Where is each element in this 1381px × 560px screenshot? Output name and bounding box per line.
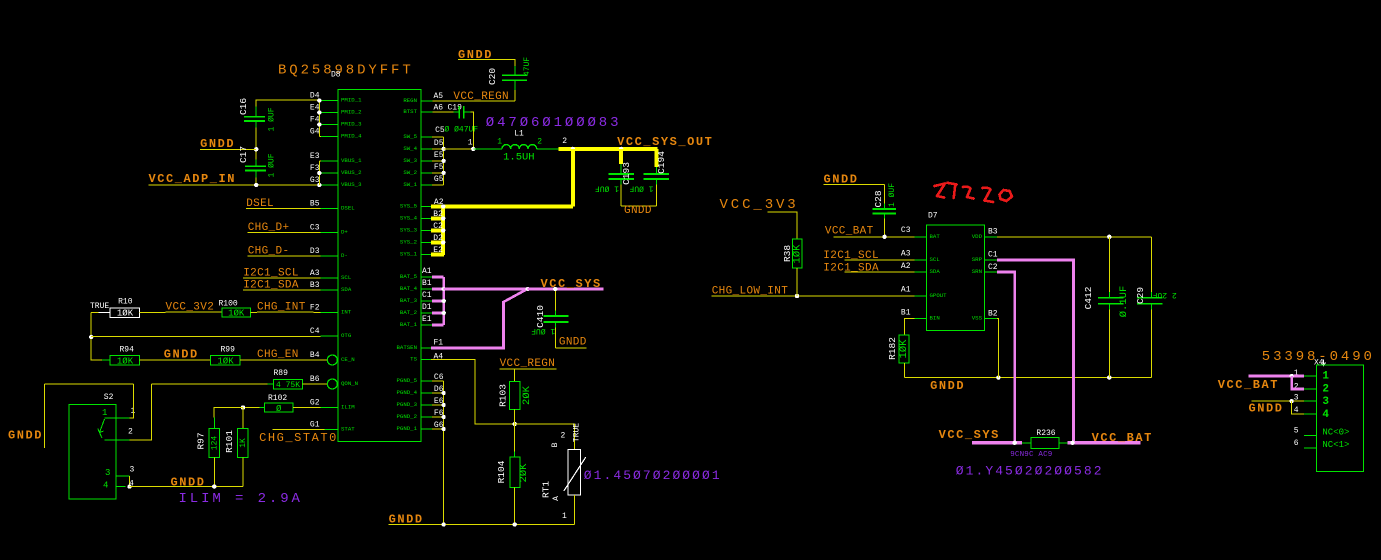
svg-text:PGND_5: PGND_5 <box>397 377 418 384</box>
svg-text:R100: R100 <box>219 300 238 309</box>
svg-text:X4: X4 <box>1314 359 1324 368</box>
svg-text:D+: D+ <box>341 229 348 236</box>
svg-text:C2: C2 <box>988 263 998 272</box>
svg-text:1ØK: 1ØK <box>898 339 910 359</box>
svg-text:SYS_1: SYS_1 <box>400 251 418 258</box>
svg-text:VBUS_2: VBUS_2 <box>341 169 362 176</box>
svg-text:3: 3 <box>105 468 110 478</box>
svg-text:2ØK: 2ØK <box>518 463 530 483</box>
svg-text:PGND_2: PGND_2 <box>397 413 418 420</box>
svg-text:Ø1.45Ø7Ø2ØØØØ1: Ø1.45Ø7Ø2ØØØØ1 <box>584 468 722 483</box>
svg-text:C4: C4 <box>310 327 320 336</box>
svg-text:BQ25898DYFFT: BQ25898DYFFT <box>278 63 414 79</box>
svg-text:E2: E2 <box>433 246 443 255</box>
svg-text:SDA: SDA <box>930 268 941 275</box>
svg-text:1 ØUF: 1 ØUF <box>595 184 619 193</box>
svg-text:C193: C193 <box>621 162 632 185</box>
svg-text:47UF: 47UF <box>523 57 532 76</box>
svg-text:C194: C194 <box>656 151 667 174</box>
svg-text:SW_3: SW_3 <box>403 157 417 164</box>
svg-text:4: 4 <box>103 481 108 491</box>
svg-text:A3: A3 <box>310 269 320 278</box>
svg-text:F2: F2 <box>310 304 320 313</box>
svg-text:B1: B1 <box>901 309 911 318</box>
svg-text:C412: C412 <box>1083 286 1094 309</box>
svg-text:NC<0>: NC<0> <box>1322 428 1349 438</box>
svg-text:1ØK: 1ØK <box>217 357 234 367</box>
svg-text:VCC_SYS: VCC_SYS <box>939 428 1000 442</box>
svg-text:E5: E5 <box>434 151 444 160</box>
svg-text:1 ØUF: 1 ØUF <box>531 326 555 335</box>
svg-text:C5: C5 <box>435 126 445 135</box>
svg-text:R102: R102 <box>268 394 287 403</box>
svg-text:9CN9C AC9: 9CN9C AC9 <box>1010 451 1052 459</box>
svg-text:R103: R103 <box>498 384 509 407</box>
svg-text:1ØK: 1ØK <box>117 309 134 319</box>
svg-text:B6: B6 <box>310 375 320 384</box>
svg-text:GPOUT: GPOUT <box>930 292 948 299</box>
svg-text:INT: INT <box>341 309 352 316</box>
svg-text:ILIM = 2.9A: ILIM = 2.9A <box>179 491 303 507</box>
svg-text:124: 124 <box>211 436 220 451</box>
svg-text:F6: F6 <box>434 409 444 418</box>
svg-text:D8: D8 <box>331 71 341 80</box>
svg-text:C29: C29 <box>1135 287 1146 304</box>
svg-text:C3: C3 <box>310 224 320 233</box>
svg-text:BAT: BAT <box>930 233 941 240</box>
svg-text:CHG_STAT0: CHG_STAT0 <box>259 431 338 445</box>
svg-text:1: 1 <box>468 138 473 147</box>
svg-text:VCC_SYS: VCC_SYS <box>541 277 602 291</box>
svg-text:BAT_4: BAT_4 <box>400 285 418 292</box>
svg-text:D7: D7 <box>928 212 938 221</box>
svg-text:R236: R236 <box>1036 429 1055 438</box>
svg-text:PGND_4: PGND_4 <box>397 389 418 396</box>
svg-text:C17: C17 <box>238 146 249 163</box>
svg-text:R89: R89 <box>274 369 289 378</box>
svg-text:B2: B2 <box>433 210 443 219</box>
svg-text:1K: 1K <box>239 438 248 448</box>
svg-text:GNDD: GNDD <box>624 205 652 217</box>
svg-text:C19: C19 <box>448 104 463 113</box>
svg-text:BIN: BIN <box>930 315 940 322</box>
svg-text:CHG_EN: CHG_EN <box>257 349 299 361</box>
svg-text:D-: D- <box>341 252 348 259</box>
svg-text:A: A <box>552 496 561 501</box>
svg-text:1: 1 <box>1322 371 1329 383</box>
svg-text:A5: A5 <box>434 92 444 101</box>
svg-text:R99: R99 <box>221 346 236 355</box>
svg-text:TRUE: TRUE <box>90 302 109 311</box>
svg-text:C28: C28 <box>873 190 884 207</box>
svg-text:GNDD: GNDD <box>171 475 206 489</box>
svg-text:1ØK: 1ØK <box>228 309 245 319</box>
svg-text:VDD: VDD <box>972 233 983 240</box>
svg-text:2: 2 <box>561 432 566 441</box>
svg-text:1: 1 <box>497 138 502 147</box>
svg-text:B4: B4 <box>310 351 320 360</box>
svg-text:SCL: SCL <box>930 256 941 263</box>
svg-text:BTST: BTST <box>403 108 417 115</box>
svg-text:C6: C6 <box>434 373 444 382</box>
svg-text:VCC_REGN: VCC_REGN <box>500 358 556 370</box>
svg-text:5: 5 <box>1294 427 1299 436</box>
svg-text:F5: F5 <box>434 163 444 172</box>
svg-text:C3: C3 <box>901 226 911 235</box>
svg-text:1ØK: 1ØK <box>117 357 134 367</box>
svg-text:ILIM: ILIM <box>341 404 355 411</box>
svg-text:D5: D5 <box>434 139 444 148</box>
svg-text:A1: A1 <box>901 286 911 295</box>
svg-text:G4: G4 <box>310 128 320 137</box>
svg-text:R101: R101 <box>224 430 235 453</box>
svg-text:Ø.1UF: Ø.1UF <box>1118 286 1130 318</box>
svg-text:D6: D6 <box>434 385 444 394</box>
svg-text:PGND_3: PGND_3 <box>397 401 418 408</box>
svg-text:BAT_3: BAT_3 <box>400 297 418 304</box>
svg-text:B3: B3 <box>988 228 998 237</box>
svg-text:VCC_ADP_IN: VCC_ADP_IN <box>149 172 237 186</box>
svg-text:PMID_2: PMID_2 <box>341 109 362 116</box>
svg-text:D1: D1 <box>422 303 432 312</box>
svg-text:BAT_2: BAT_2 <box>400 309 418 316</box>
svg-text:C410: C410 <box>535 305 546 328</box>
svg-text:2: 2 <box>1322 384 1329 396</box>
svg-text:R104: R104 <box>496 460 507 483</box>
svg-text:VSS: VSS <box>972 315 983 322</box>
svg-text:R97: R97 <box>196 432 207 449</box>
svg-text:GNDD: GNDD <box>1249 401 1284 415</box>
svg-text:PGND_1: PGND_1 <box>397 425 418 432</box>
svg-text:2: 2 <box>128 428 133 437</box>
svg-text:BATSEN: BATSEN <box>397 344 417 351</box>
svg-text:Ø: Ø <box>276 404 282 414</box>
svg-text:F1: F1 <box>434 339 444 348</box>
svg-text:C1: C1 <box>422 291 432 300</box>
svg-text:A6: A6 <box>434 104 444 113</box>
svg-text:R94: R94 <box>120 346 135 355</box>
svg-text:B1: B1 <box>422 279 432 288</box>
svg-text:NC<1>: NC<1> <box>1322 440 1349 450</box>
svg-text:SRN: SRN <box>972 268 982 275</box>
svg-text:A1: A1 <box>422 267 432 276</box>
svg-text:BAT_1: BAT_1 <box>400 321 418 328</box>
svg-text:SDA: SDA <box>341 286 352 293</box>
svg-text:Ø Ø47UF: Ø Ø47UF <box>445 126 479 135</box>
svg-text:GNDD: GNDD <box>930 379 965 393</box>
svg-text:C20: C20 <box>487 68 498 85</box>
svg-text:E6: E6 <box>434 397 444 406</box>
svg-text:SW_1: SW_1 <box>403 181 417 188</box>
svg-text:SCL: SCL <box>341 274 352 281</box>
svg-text:G6: G6 <box>434 421 444 430</box>
svg-text:SW_5: SW_5 <box>403 133 417 140</box>
svg-text:SYS_4: SYS_4 <box>400 215 418 222</box>
svg-text:PMID_4: PMID_4 <box>341 133 362 140</box>
svg-text:1: 1 <box>562 512 567 521</box>
svg-text:STAT: STAT <box>341 426 355 433</box>
svg-text:R182: R182 <box>887 337 898 360</box>
svg-text:2: 2 <box>537 138 542 147</box>
svg-text:SYS_2: SYS_2 <box>400 239 418 246</box>
svg-text:1ØK: 1ØK <box>791 244 803 264</box>
svg-text:C2: C2 <box>433 222 443 231</box>
svg-text:SYS_5: SYS_5 <box>400 203 418 210</box>
svg-text:TS: TS <box>410 356 417 363</box>
svg-text:QON_N: QON_N <box>341 380 358 387</box>
svg-text:G5: G5 <box>434 175 444 184</box>
svg-text:B2: B2 <box>988 310 998 319</box>
svg-text:2ØK: 2ØK <box>521 385 533 405</box>
svg-text:1 ØUF: 1 ØUF <box>268 107 277 131</box>
svg-text:GNDD: GNDD <box>164 348 199 362</box>
svg-text:1 ØUF: 1 ØUF <box>629 184 653 193</box>
svg-text:VCC_BAT: VCC_BAT <box>1092 431 1153 445</box>
svg-text:A4: A4 <box>434 353 444 362</box>
svg-text:Ø47Ø6Ø1ØØØ83: Ø47Ø6Ø1ØØØ83 <box>486 115 622 131</box>
svg-text:PMID_1: PMID_1 <box>341 97 362 104</box>
svg-text:CE_N: CE_N <box>341 356 355 363</box>
svg-text:SW_2: SW_2 <box>403 169 417 176</box>
svg-text:VBUS_3: VBUS_3 <box>341 181 362 188</box>
svg-text:GNDD: GNDD <box>559 336 587 348</box>
svg-text:GNDD: GNDD <box>8 429 43 443</box>
svg-text:REGN: REGN <box>403 97 417 104</box>
svg-text:1: 1 <box>102 408 107 418</box>
svg-text:G2: G2 <box>310 399 320 408</box>
svg-text:PMID_3: PMID_3 <box>341 121 362 128</box>
svg-text:Ø1.Y45Ø2Ø2ØØ582: Ø1.Y45Ø2Ø2ØØ582 <box>956 464 1104 479</box>
svg-text:SW_4: SW_4 <box>403 145 417 152</box>
svg-text:6: 6 <box>1294 439 1299 448</box>
svg-text:1 ØUF: 1 ØUF <box>888 183 897 207</box>
svg-text:SYS_3: SYS_3 <box>400 227 418 234</box>
svg-text:E1: E1 <box>422 315 432 324</box>
svg-text:1.5UH: 1.5UH <box>503 151 535 163</box>
svg-text:A3: A3 <box>901 250 911 259</box>
svg-text:VCC_SYS_OUT: VCC_SYS_OUT <box>617 135 713 149</box>
svg-text:B5: B5 <box>310 200 320 209</box>
svg-text:1 ØUF: 1 ØUF <box>268 153 277 177</box>
svg-text:DSEL: DSEL <box>341 205 355 212</box>
svg-text:2: 2 <box>562 137 567 146</box>
svg-text:3: 3 <box>1322 396 1329 408</box>
svg-text:VCC_3V3: VCC_3V3 <box>720 197 799 213</box>
svg-text:C16: C16 <box>238 98 249 115</box>
svg-text:A2: A2 <box>434 198 444 207</box>
svg-text:3: 3 <box>130 466 135 475</box>
svg-text:4: 4 <box>1322 409 1329 421</box>
svg-text:2 2UF: 2 2UF <box>1153 290 1177 299</box>
svg-text:SRP: SRP <box>972 256 983 263</box>
svg-text:D3: D3 <box>310 247 320 256</box>
svg-text:RT1: RT1 <box>541 481 552 498</box>
svg-text:VBUS_1: VBUS_1 <box>341 157 362 164</box>
svg-text:B: B <box>551 442 560 447</box>
svg-text:VCC_BAT: VCC_BAT <box>825 226 874 238</box>
svg-text:B3: B3 <box>310 281 320 290</box>
svg-text:C1: C1 <box>988 251 998 260</box>
svg-text:VCC_BAT: VCC_BAT <box>1218 378 1279 392</box>
svg-text:TRUE: TRUE <box>572 423 581 442</box>
svg-text:OTG: OTG <box>341 332 352 339</box>
svg-text:A2: A2 <box>901 262 911 271</box>
svg-text:D2: D2 <box>433 234 443 243</box>
svg-text:S2: S2 <box>104 393 114 402</box>
svg-text:G1: G1 <box>310 421 320 430</box>
svg-text:4 75K: 4 75K <box>276 381 300 390</box>
svg-text:R10: R10 <box>118 298 133 307</box>
svg-text:BAT_5: BAT_5 <box>400 273 418 280</box>
svg-text:E3: E3 <box>310 152 320 161</box>
